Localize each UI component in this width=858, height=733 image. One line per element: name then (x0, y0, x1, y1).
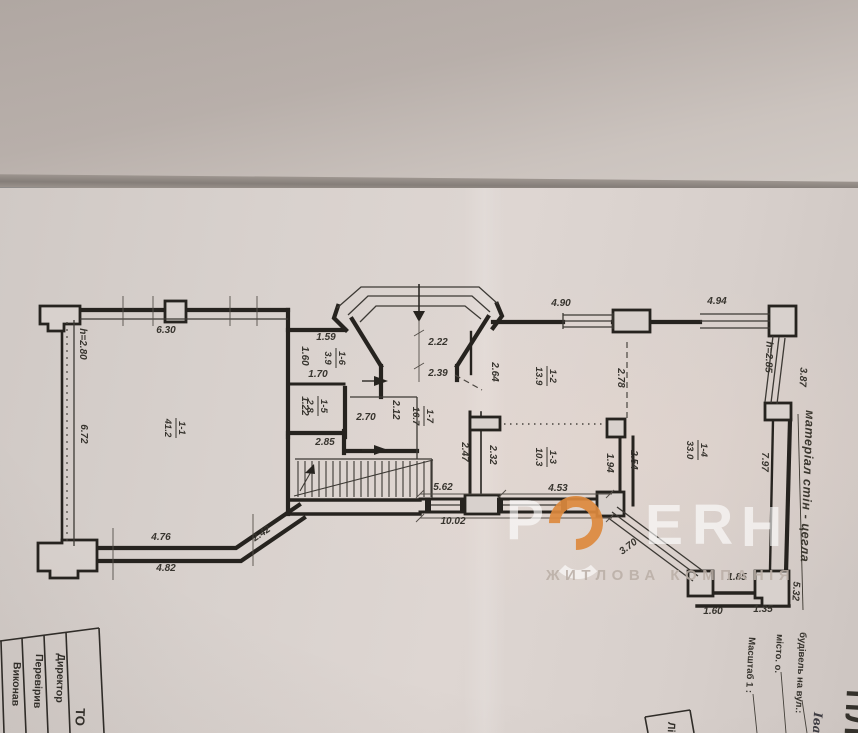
material-note: матеріал стін - цегла (798, 410, 817, 610)
room-number: 1-1 (176, 421, 187, 435)
material-note-text: матеріал стін - цегла (798, 410, 817, 563)
room-number: 1-2 (547, 369, 558, 383)
room-label: 1-310.3 (533, 447, 558, 467)
room-label: 1-433.0 (684, 440, 709, 460)
room-area: 33.0 (684, 441, 695, 460)
titleblock-row-director: Директор (53, 653, 67, 703)
titleblock-row-checked: Перевірив (31, 654, 45, 709)
watermark-letter-e: E (645, 497, 683, 554)
dimension-label: 2.85 (314, 437, 335, 448)
sheet-title: ПЛАН (835, 689, 858, 733)
stair-direction-arrow (305, 464, 315, 474)
room-number: 1-5 (318, 399, 329, 413)
dimension-label: 6.72 (78, 424, 89, 444)
watermark-letter-p: P (506, 492, 544, 549)
building-address-label: будівель на вул.: (793, 632, 808, 714)
dimension-label: 2.54 (628, 449, 639, 470)
room-number: 1-7 (424, 409, 435, 423)
sheet-corner-labels: будівель на вул.: Іва місто. о. Масштаб … (645, 632, 858, 733)
dimension-label: 10.02 (440, 516, 465, 527)
dimension-label: 2.39 (427, 368, 448, 379)
stamp-box-label: Лі (665, 722, 678, 733)
dimension-label: 1.94 (604, 453, 615, 473)
dimension-label: 4.82 (155, 563, 176, 574)
dimension-label: 5.62 (433, 482, 453, 493)
room-label: 1-63.9 (322, 348, 347, 368)
dimension-label: 2.22 (427, 337, 448, 348)
floor-plan-drawing: 6.30h=2.806.724.764.822.421.591.601.701.… (0, 0, 858, 733)
room-number: 1-3 (547, 450, 558, 464)
dimension-label: 2.47 (459, 441, 470, 462)
room-area: 13.9 (533, 367, 544, 386)
room-area: 10.3 (533, 448, 544, 467)
dimension-label: 2.12 (390, 399, 401, 420)
dimension-label: 1.70 (308, 369, 328, 380)
dimension-label: 1.60 (703, 606, 723, 617)
dimension-label: 7.97 (759, 452, 770, 472)
room-number: 1-6 (336, 351, 347, 365)
room-area: 3.9 (322, 351, 333, 365)
photographed-floor-plan: 6.30h=2.806.724.764.822.421.591.601.701.… (0, 0, 858, 733)
room-area: 16.7 (410, 407, 421, 426)
dimension-label: h=2.85 (762, 341, 774, 373)
dimension-label: 5.32 (789, 581, 801, 602)
dimension-label: 2.70 (355, 412, 376, 423)
handwritten-entry: Іва (810, 711, 825, 733)
dimension-label: 1.59 (316, 332, 336, 343)
city-label: місто. о. (772, 634, 785, 674)
walls-thick (62, 304, 790, 606)
watermark-letter-h: H (741, 499, 782, 556)
dimension-label: 2.32 (487, 444, 498, 465)
dimension-label: 6.30 (156, 325, 176, 336)
watermark-subtitle: ЖИТЛОВА КОМПАНІЯ (546, 567, 795, 584)
room-area: 41.2 (162, 418, 173, 438)
room-number: 1-4 (698, 443, 709, 457)
dimension-label: 4.90 (550, 298, 571, 309)
dimension-label: 2.78 (615, 367, 626, 388)
dimension-label: 3.87 (796, 367, 808, 387)
dimension-label: 4.53 (547, 483, 568, 494)
titleblock-row-executor: Виконав (9, 662, 23, 707)
dimension-label: 4.76 (150, 532, 171, 543)
dimension-label: 1.60 (299, 346, 310, 366)
staircase (294, 460, 433, 497)
room-label: 1-213.9 (533, 366, 558, 386)
scale-label: Масштаб 1 : (743, 637, 757, 694)
room-label: 1-716.7 (410, 406, 435, 426)
room-area: 2.8 (304, 398, 315, 413)
titleblock-org: ТО (72, 708, 88, 726)
room-label: 1-141.2 (162, 418, 187, 438)
dimension-label: 2.64 (489, 361, 500, 382)
dimension-label: h=2.80 (77, 328, 88, 360)
watermark-letter-r: R (692, 497, 733, 554)
dimension-label: 4.94 (706, 296, 727, 307)
title-block: Виконав Перевірив Директор ТО (0, 628, 104, 733)
dimension-label: 1.35 (753, 604, 773, 615)
entrance-arrow (413, 284, 425, 322)
